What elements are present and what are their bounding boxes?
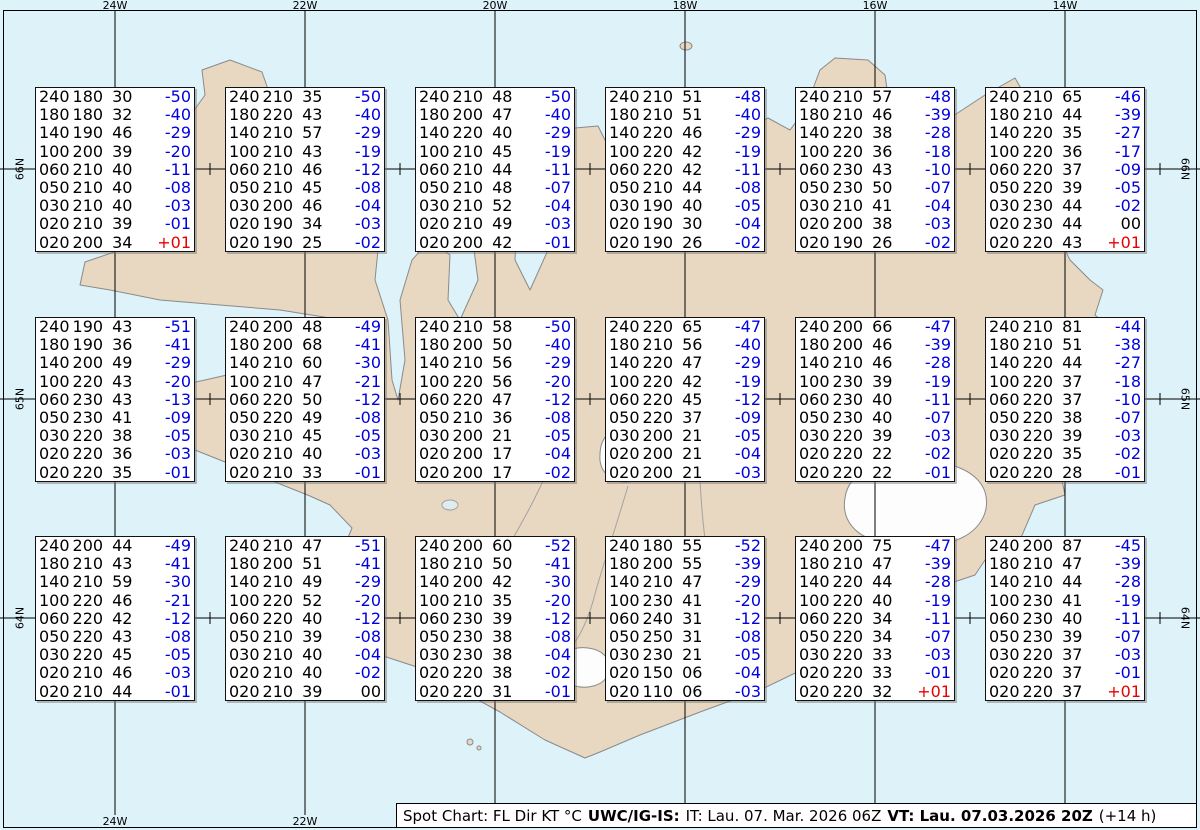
temperature: -12 [545,610,571,628]
temperature: -08 [735,628,761,646]
temperature: -03 [1115,646,1141,664]
wind-speed: 41 [1062,592,1082,610]
wind-direction: 210 [263,537,294,555]
temperature: -39 [735,555,761,573]
wind-direction: 200 [73,354,104,372]
spot-line: 24020075-47 [799,537,951,555]
spot-line: 14022046-29 [609,124,761,142]
spot-line: 02021049-03 [419,215,571,233]
spot-box: 24021065-4618021044-3914022035-271002203… [985,87,1145,252]
spot-box: 24021058-5018020050-4014021056-291002205… [415,317,575,482]
flight-level: 030 [989,197,1020,215]
spot-line: 02022035-02 [989,445,1141,463]
flight-level: 180 [799,106,830,124]
flight-level: 140 [229,573,260,591]
temperature: -41 [355,555,381,573]
spot-box: 24021081-4418021051-3814022044-271002203… [985,317,1145,482]
flight-level: 020 [799,234,830,252]
temperature: -13 [165,391,191,409]
temperature: -01 [1115,664,1141,682]
wind-speed: 46 [872,106,892,124]
spot-line: 10022043-20 [39,373,191,391]
longitude-label-bottom: 22W [293,815,318,828]
wind-speed: 46 [682,124,702,142]
wind-speed: 56 [492,373,512,391]
wind-speed: 41 [112,409,132,427]
temperature: -29 [355,124,381,142]
flight-level: 060 [419,610,450,628]
temperature: -17 [1115,143,1141,161]
flight-level: 020 [989,445,1020,463]
wind-direction: 190 [263,234,294,252]
spot-line: 10023041-20 [609,592,761,610]
flight-level: 180 [229,106,260,124]
flight-level: 140 [419,124,450,142]
wind-direction: 210 [1023,88,1054,106]
wind-direction: 210 [453,555,484,573]
spot-line: 03020021-05 [419,427,571,445]
spot-line: 18021044-39 [989,106,1141,124]
flight-level: 050 [609,409,640,427]
wind-direction: 200 [453,445,484,463]
flight-level: 100 [39,592,70,610]
wind-speed: 35 [1062,445,1082,463]
temperature: -07 [545,179,571,197]
wind-speed: 87 [1062,537,1082,555]
spot-line: 24021047-51 [229,537,381,555]
flight-level: 050 [799,628,830,646]
latitude-label-right: 64N [1179,607,1192,629]
temperature: -02 [545,664,571,682]
spot-line: 06022040-12 [229,610,381,628]
wind-direction: 210 [833,555,864,573]
spot-line: 14021046-28 [799,354,951,372]
wind-direction: 220 [643,161,674,179]
wind-speed: 33 [302,464,322,482]
flight-level: 050 [229,179,260,197]
temperature: -03 [165,197,191,215]
spot-line: 02021046-03 [39,664,191,682]
wind-direction: 210 [453,354,484,372]
wind-direction: 200 [643,555,674,573]
temperature: -04 [545,646,571,664]
wind-direction: 220 [833,143,864,161]
island-vestmannaeyjar [477,746,481,750]
wind-speed: 39 [492,610,512,628]
flight-level: 240 [799,318,830,336]
spot-line: 06021040-11 [39,161,191,179]
wind-speed: 39 [302,683,322,701]
spot-line: 18019036-41 [39,336,191,354]
flight-level: 060 [989,161,1020,179]
spot-line: 24022065-47 [609,318,761,336]
flight-level: 240 [609,537,640,555]
wind-direction: 220 [833,646,864,664]
wind-speed: 50 [872,179,892,197]
temperature: -19 [735,143,761,161]
wind-speed: 33 [872,646,892,664]
flight-level: 020 [229,215,260,233]
flight-level: 020 [39,464,70,482]
spot-line: 05021040-08 [39,179,191,197]
wind-direction: 200 [263,197,294,215]
wind-speed: 43 [1062,234,1082,252]
temperature: -04 [355,197,381,215]
temperature: -03 [925,427,951,445]
spot-line: 02021040-03 [229,445,381,463]
temperature: -12 [355,610,381,628]
wind-direction: 220 [73,427,104,445]
temperature: -03 [355,215,381,233]
spot-line: 18020055-39 [609,555,761,573]
wind-speed: 49 [112,354,132,372]
temperature: -05 [735,646,761,664]
temperature: -46 [1115,88,1141,106]
temperature: -08 [165,628,191,646]
wind-speed: 39 [872,427,892,445]
spot-box: 24020075-4718021047-3914022044-281002204… [795,536,955,701]
wind-direction: 210 [1023,106,1054,124]
flight-level: 180 [39,336,70,354]
wind-speed: 30 [112,88,132,106]
temperature: -28 [925,573,951,591]
spot-line: 14020042-30 [419,573,571,591]
flight-level: 030 [229,427,260,445]
flight-level: 050 [989,179,1020,197]
flight-level: 050 [799,409,830,427]
wind-direction: 190 [73,336,104,354]
flight-level: 100 [229,592,260,610]
temperature: -11 [735,161,761,179]
spot-line: 06022047-12 [419,391,571,409]
flight-level: 020 [799,664,830,682]
spot-line: 18020051-41 [229,555,381,573]
temperature: -50 [165,88,191,106]
spot-line: 05022039-05 [989,179,1141,197]
temperature: -03 [925,646,951,664]
temperature: -08 [355,628,381,646]
spot-line: 03021040-04 [229,646,381,664]
spot-line: 06021046-12 [229,161,381,179]
wind-speed: 30 [682,215,702,233]
temperature: -18 [1115,373,1141,391]
flight-level: 140 [39,573,70,591]
temperature: -05 [1115,179,1141,197]
wind-speed: 52 [302,592,322,610]
wind-speed: 37 [1062,646,1082,664]
temperature: -20 [735,592,761,610]
flight-level: 020 [419,445,450,463]
wind-speed: 40 [302,664,322,682]
temperature: -07 [925,179,951,197]
spot-line: 18020046-39 [799,336,951,354]
wind-speed: 06 [682,683,702,701]
temperature: -03 [165,445,191,463]
flight-level: 050 [419,628,450,646]
wind-direction: 200 [73,234,104,252]
chart-type-label: Spot Chart: FL Dir KT °C [403,807,582,825]
temperature: -47 [925,318,951,336]
wind-speed: 21 [682,445,702,463]
spot-line: 02020021-03 [609,464,761,482]
temperature: -41 [165,336,191,354]
wind-speed: 47 [682,573,702,591]
wind-speed: 66 [872,318,892,336]
flight-level: 020 [989,234,1020,252]
spot-line: 10021043-19 [229,143,381,161]
temperature: -49 [165,537,191,555]
wind-speed: 40 [112,161,132,179]
wind-direction: 210 [453,409,484,427]
flight-level: 030 [419,427,450,445]
wind-direction: 210 [263,373,294,391]
temperature: -28 [925,124,951,142]
flight-level: 060 [229,391,260,409]
flight-level: 240 [419,88,450,106]
flight-level: 140 [39,124,70,142]
wind-direction: 220 [73,628,104,646]
spot-line: 05021044-08 [609,179,761,197]
wind-speed: 31 [682,628,702,646]
spot-line: 06021044-11 [419,161,571,179]
latitude-label-right: 66N [1179,158,1192,180]
temperature: -05 [355,427,381,445]
temperature: -01 [165,215,191,233]
wind-speed: 65 [1062,88,1082,106]
temperature: -19 [355,143,381,161]
spot-line: 18021043-41 [39,555,191,573]
wind-speed: 50 [492,336,512,354]
temperature: -40 [355,106,381,124]
temperature: -02 [545,464,571,482]
spot-line: 05021039-08 [229,628,381,646]
flight-level: 140 [609,124,640,142]
wind-speed: 56 [492,354,512,372]
flight-level: 050 [39,628,70,646]
wind-speed: 55 [682,537,702,555]
temperature: -07 [925,409,951,427]
wind-speed: 39 [112,215,132,233]
wind-direction: 210 [643,179,674,197]
temperature: -30 [165,573,191,591]
temperature: -29 [735,124,761,142]
temperature: -04 [735,215,761,233]
spot-line: 14022040-29 [419,124,571,142]
wind-direction: 200 [73,537,104,555]
temperature: -27 [1115,124,1141,142]
flight-level: 240 [419,537,450,555]
temperature: -12 [165,610,191,628]
wind-direction: 220 [1023,445,1054,463]
temperature: -20 [355,592,381,610]
flight-level: 020 [989,464,1020,482]
wind-direction: 220 [263,592,294,610]
flight-level: 180 [989,336,1020,354]
wind-direction: 220 [1023,391,1054,409]
flight-level: 030 [609,427,640,445]
spot-line: 14021057-29 [229,124,381,142]
wind-direction: 200 [453,537,484,555]
temperature: +01 [917,683,951,701]
wind-speed: 17 [492,464,512,482]
flight-level: 060 [419,391,450,409]
wind-speed: 48 [302,318,322,336]
flight-level: 100 [609,592,640,610]
spot-line: 05022034-07 [799,628,951,646]
flight-level: 020 [989,664,1020,682]
spot-line: 10022052-20 [229,592,381,610]
wind-direction: 210 [263,628,294,646]
spot-line: 14021059-30 [39,573,191,591]
wind-speed: 51 [682,88,702,106]
spot-line: 18021050-41 [419,555,571,573]
wind-speed: 40 [872,391,892,409]
spot-line: 24021057-48 [799,88,951,106]
flight-level: 050 [229,628,260,646]
spot-line: 02022032+01 [799,683,951,701]
temperature: -44 [1115,318,1141,336]
spot-line: 14022038-28 [799,124,951,142]
spot-box: 24022065-4718021056-4014022047-291002204… [605,317,765,482]
wind-speed: 21 [682,427,702,445]
temperature: -48 [735,88,761,106]
spot-line: 03021041-04 [799,197,951,215]
temperature: -39 [925,555,951,573]
wind-speed: 46 [112,592,132,610]
spot-line: 02019030-04 [609,215,761,233]
flight-level: 020 [229,445,260,463]
wind-speed: 40 [872,409,892,427]
spot-line: 10022037-18 [989,373,1141,391]
flight-level: 020 [609,215,640,233]
wind-speed: 47 [1062,555,1082,573]
flight-level: 020 [39,664,70,682]
flight-level: 030 [989,646,1020,664]
flight-level: 030 [799,646,830,664]
wind-speed: 21 [682,646,702,664]
spot-line: 18020047-40 [419,106,571,124]
wind-direction: 220 [1023,234,1054,252]
wind-speed: 44 [112,683,132,701]
temperature: -09 [165,409,191,427]
wind-direction: 250 [643,628,674,646]
flight-level: 030 [39,197,70,215]
wind-direction: 190 [643,234,674,252]
wind-direction: 210 [263,161,294,179]
spot-line: 10021047-21 [229,373,381,391]
wind-direction: 220 [1023,646,1054,664]
wind-direction: 230 [453,628,484,646]
wind-speed: 37 [1062,161,1082,179]
temperature: -45 [1115,537,1141,555]
wind-speed: 45 [302,179,322,197]
wind-speed: 38 [492,664,512,682]
temperature: -12 [545,391,571,409]
temperature: -51 [355,537,381,555]
wind-direction: 190 [643,215,674,233]
wind-direction: 220 [1023,664,1054,682]
spot-line: 03022033-03 [799,646,951,664]
wind-direction: 210 [643,336,674,354]
temperature: -01 [355,464,381,482]
temperature: -28 [925,354,951,372]
wind-speed: 46 [302,197,322,215]
temperature: -04 [545,197,571,215]
wind-speed: 39 [112,143,132,161]
temperature: -01 [925,664,951,682]
wind-direction: 190 [73,124,104,142]
wind-speed: 36 [492,409,512,427]
spot-line: 24021035-50 [229,88,381,106]
spot-line: 0202103900 [229,683,381,701]
wind-direction: 200 [833,215,864,233]
wind-direction: 220 [1023,143,1054,161]
wind-speed: 41 [682,592,702,610]
wind-direction: 220 [643,143,674,161]
temperature: -08 [735,179,761,197]
wind-direction: 230 [453,610,484,628]
wind-direction: 230 [1023,215,1054,233]
flight-level: 020 [799,464,830,482]
flight-level: 180 [419,555,450,573]
flight-level: 140 [39,354,70,372]
temperature: -01 [545,683,571,701]
wind-direction: 210 [73,215,104,233]
temperature: -40 [165,106,191,124]
temperature: -10 [925,161,951,179]
temperature: -52 [545,537,571,555]
longitude-label-bottom: 24W [103,815,128,828]
island-grimsey [680,42,692,50]
flight-level: 100 [799,143,830,161]
flight-level: 020 [609,234,640,252]
flight-level: 240 [989,318,1020,336]
temperature: -12 [355,391,381,409]
wind-speed: 81 [1062,318,1082,336]
temperature: +01 [157,234,191,252]
temperature: -50 [545,88,571,106]
wind-direction: 210 [263,683,294,701]
flight-level: 100 [799,373,830,391]
spot-line: 06024031-12 [609,610,761,628]
wind-direction: 210 [73,161,104,179]
wind-direction: 200 [1023,537,1054,555]
temperature: -08 [545,409,571,427]
spot-line: 24021081-44 [989,318,1141,336]
island-vestmannaeyjar [467,739,473,745]
spot-line: 06022045-12 [609,391,761,409]
wind-direction: 220 [833,573,864,591]
spot-line: 06022050-12 [229,391,381,409]
wind-direction: 220 [1023,409,1054,427]
flight-level: 180 [229,336,260,354]
wind-direction: 190 [643,197,674,215]
flight-level: 020 [799,683,830,701]
flight-level: 100 [989,143,1020,161]
longitude-label-top: 24W [103,0,128,12]
spot-line: 02022033-01 [799,664,951,682]
wind-speed: 47 [302,373,322,391]
flight-level: 140 [419,354,450,372]
wind-direction: 230 [643,646,674,664]
wind-direction: 200 [833,318,864,336]
temperature: -03 [1115,427,1141,445]
wind-speed: 43 [302,143,322,161]
wind-direction: 220 [643,391,674,409]
temperature: -03 [925,215,951,233]
wind-speed: 38 [872,124,892,142]
flight-level: 180 [609,336,640,354]
